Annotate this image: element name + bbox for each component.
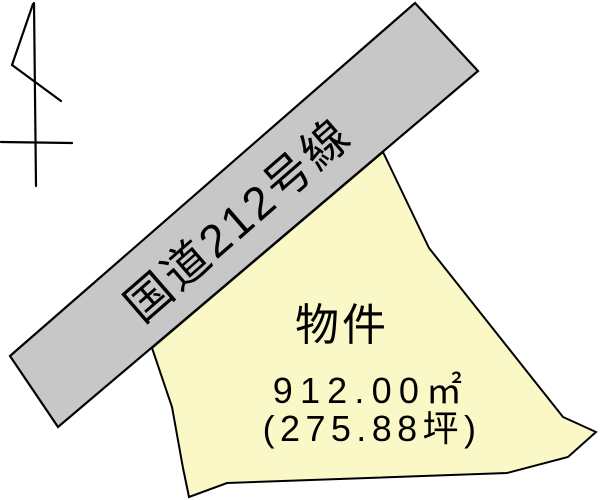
site-plan: 国道212号線 物件 912.00㎡ (275.88坪) xyxy=(0,0,600,500)
property-area-sqm: 912.00㎡ xyxy=(273,373,470,409)
property-area-tsubo: (275.88坪) xyxy=(263,411,482,447)
north-arrow-icon xyxy=(1,3,72,186)
property-label: 物件 xyxy=(295,304,389,348)
